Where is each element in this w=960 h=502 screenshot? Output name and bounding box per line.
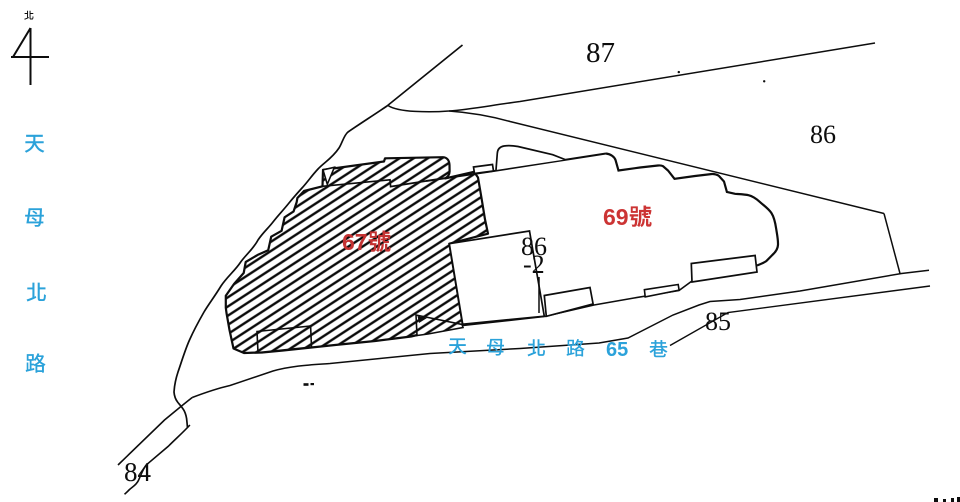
svg-text:84: 84 <box>124 457 152 487</box>
svg-text:67: 67 <box>342 229 368 255</box>
svg-text:87: 87 <box>586 37 615 69</box>
svg-text:86: 86 <box>810 120 836 149</box>
svg-text:65: 65 <box>606 339 628 361</box>
svg-text:85: 85 <box>705 307 731 336</box>
svg-text:-2: -2 <box>523 250 545 279</box>
svg-text:69: 69 <box>603 204 629 230</box>
